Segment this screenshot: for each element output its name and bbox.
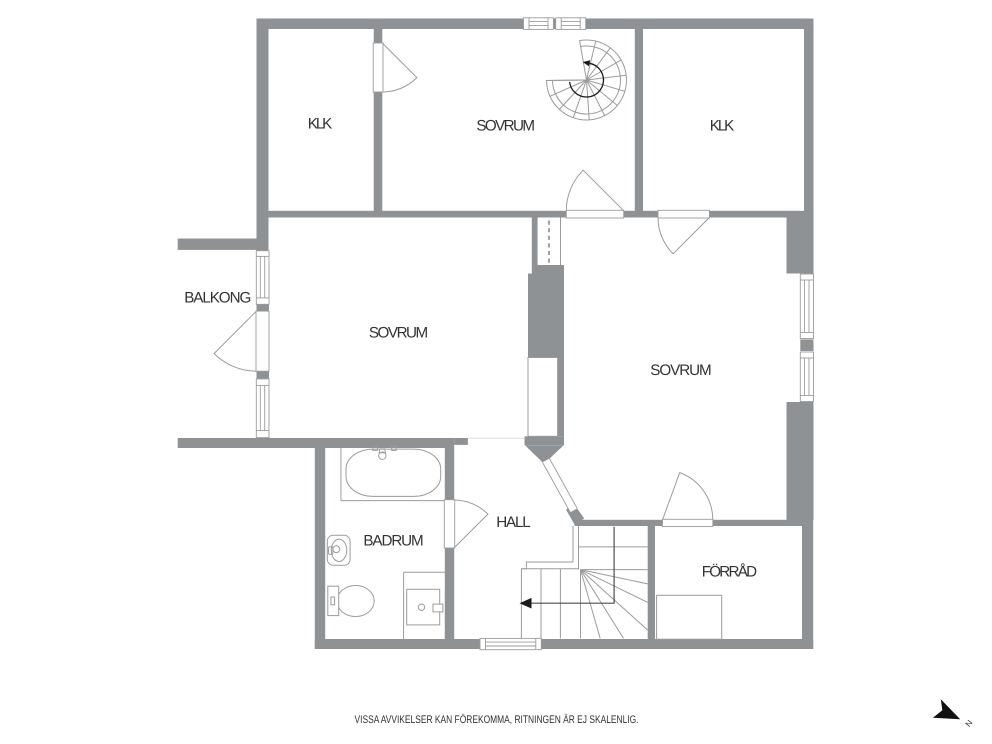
- svg-text:VISSA AVVIKELSER KAN FÖREKOMMA: VISSA AVVIKELSER KAN FÖREKOMMA, RITNINGE…: [355, 713, 639, 726]
- svg-text:HALL: HALL: [496, 514, 531, 531]
- svg-text:BADRUM: BADRUM: [363, 532, 423, 549]
- svg-text:KLK: KLK: [308, 115, 333, 132]
- svg-text:SOVRUM: SOVRUM: [369, 325, 428, 342]
- svg-text:SOVRUM: SOVRUM: [650, 362, 711, 379]
- svg-text:KLK: KLK: [710, 117, 735, 134]
- svg-text:FÖRRÅD: FÖRRÅD: [702, 562, 757, 580]
- svg-text:SOVRUM: SOVRUM: [476, 117, 535, 134]
- svg-text:BALKONG: BALKONG: [184, 289, 251, 306]
